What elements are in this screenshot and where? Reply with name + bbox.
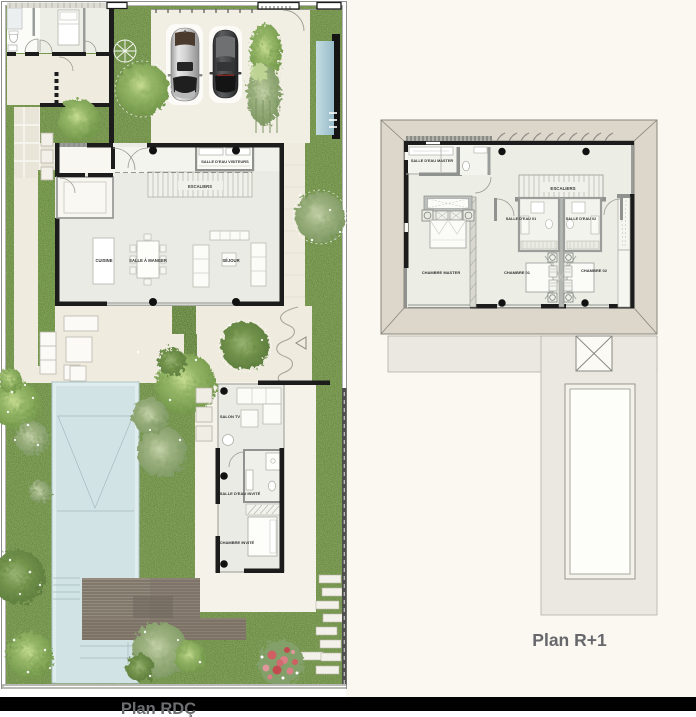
- svg-text:Plan RDÇ: Plan RDÇ: [121, 700, 196, 717]
- svg-text:CHAMBRE 02: CHAMBRE 02: [581, 268, 608, 273]
- svg-text:SALLE D'EAU VISITEURS: SALLE D'EAU VISITEURS: [201, 159, 249, 164]
- svg-text:SALLE D'EAU 02: SALLE D'EAU 02: [566, 217, 596, 221]
- svg-text:ESCALIERS: ESCALIERS: [550, 186, 575, 191]
- svg-text:Plan R+1: Plan R+1: [532, 630, 607, 650]
- svg-text:SALLE D'EAU 01: SALLE D'EAU 01: [506, 217, 536, 221]
- svg-text:SALLE D'EAU MASTER: SALLE D'EAU MASTER: [411, 159, 454, 163]
- svg-text:CUISINE: CUISINE: [96, 258, 113, 263]
- svg-text:SALLE À MANGER: SALLE À MANGER: [129, 258, 167, 263]
- svg-text:SALLE D'EAU INVITÉ: SALLE D'EAU INVITÉ: [220, 491, 261, 496]
- svg-text:SALON TV: SALON TV: [220, 414, 241, 419]
- svg-text:CHAMBRE MASTER: CHAMBRE MASTER: [422, 270, 461, 275]
- svg-text:CHAMBRE 01: CHAMBRE 01: [504, 270, 531, 275]
- svg-text:SÉJOUR: SÉJOUR: [222, 258, 239, 263]
- svg-text:ESCALIERS: ESCALIERS: [188, 184, 212, 189]
- svg-text:CHAMBRE INVITÉ: CHAMBRE INVITÉ: [220, 540, 255, 545]
